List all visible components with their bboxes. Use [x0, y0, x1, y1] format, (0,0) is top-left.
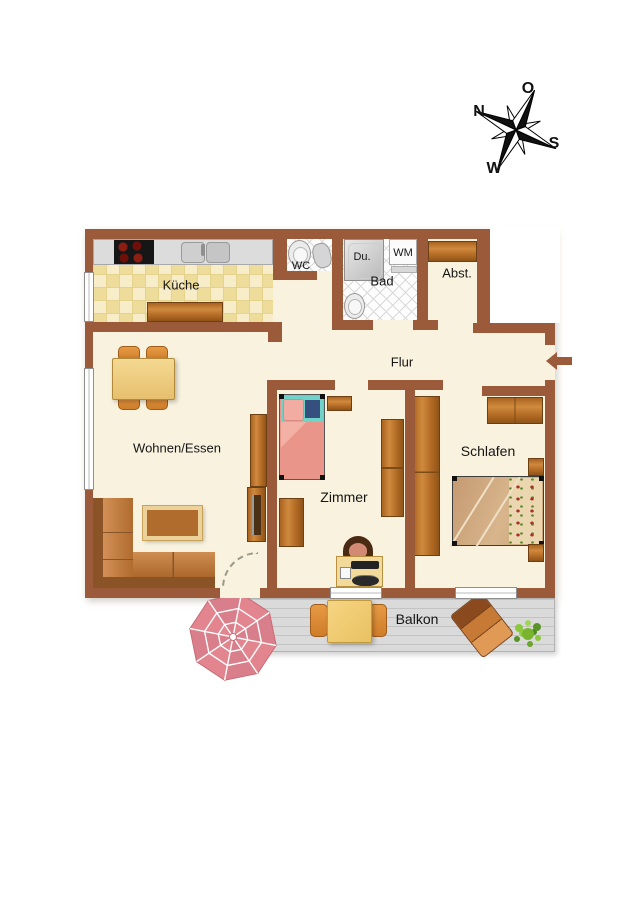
wall-segment	[332, 229, 343, 330]
faucet-icon	[201, 244, 205, 256]
bed-pillow	[283, 399, 304, 421]
wardrobe	[381, 419, 404, 517]
single-bed	[279, 394, 325, 480]
room-label-abst: Abst.	[442, 266, 472, 281]
wall-segment	[477, 229, 490, 333]
wall-segment	[428, 320, 438, 330]
sofa-seats	[103, 498, 133, 588]
wardrobe	[412, 396, 440, 556]
wall-segment	[267, 380, 335, 390]
window	[330, 587, 382, 599]
nightstand	[327, 396, 352, 411]
wall-segment	[85, 229, 490, 239]
room-label-wohnen: Wohnen/Essen	[133, 441, 221, 456]
fixture-label-dusche: Du.	[353, 251, 370, 263]
storage-shelf	[428, 241, 477, 262]
wall-segment	[273, 271, 317, 280]
compass-label-north: N	[473, 103, 485, 120]
fixture-label-wm: WM	[393, 247, 413, 259]
shelf	[279, 498, 304, 547]
compass-label-south: S	[549, 135, 560, 152]
bed-post	[320, 394, 325, 399]
wall-segment	[482, 386, 545, 396]
wall-segment	[267, 380, 277, 588]
bed-post	[279, 475, 284, 480]
wall-segment	[268, 322, 282, 342]
wall-segment	[85, 322, 282, 332]
bed-post	[452, 541, 457, 546]
bed-post	[279, 394, 284, 399]
floor-plan: Küche WC Du. Bad WM Abst. Flur Wohnen/Es…	[0, 0, 635, 900]
kitchen-table	[147, 302, 223, 322]
shelf	[487, 397, 543, 424]
room-label-schlafen: Schlafen	[461, 443, 515, 459]
compass-label-west: W	[486, 160, 502, 177]
cabinet	[250, 414, 267, 487]
desk	[336, 556, 383, 587]
balcony-chair	[310, 604, 328, 637]
room-label-flur: Flur	[391, 355, 413, 370]
washing-machine-lid	[391, 266, 417, 273]
sofa-back	[103, 577, 215, 588]
plant-icon	[522, 628, 534, 640]
window	[84, 272, 94, 322]
bed-post	[320, 475, 325, 480]
room-label-balkon: Balkon	[396, 611, 439, 627]
entrance-arrow-icon	[546, 352, 557, 370]
bed-folded-blanket	[305, 400, 320, 418]
window	[84, 368, 94, 490]
coffee-table	[143, 506, 202, 540]
sofa-seats	[133, 552, 215, 577]
parasol-icon	[187, 591, 279, 683]
bed-post	[539, 476, 544, 481]
wall-segment	[545, 380, 555, 598]
room-label-kueche: Küche	[163, 278, 200, 293]
keyboard-icon	[351, 561, 379, 569]
bed-seam	[449, 477, 494, 548]
compass-label-east: O	[522, 80, 534, 97]
wall-segment	[545, 323, 555, 345]
compass-rose: O N S W	[452, 66, 582, 184]
cabinet-slot	[252, 495, 261, 535]
cabinet	[247, 487, 266, 542]
bed-post	[452, 476, 457, 481]
sofa-back	[93, 498, 103, 588]
window	[455, 587, 517, 599]
dining-table	[112, 358, 175, 400]
nightstand	[528, 458, 544, 476]
wall-segment	[415, 380, 443, 390]
wall-segment	[405, 380, 415, 588]
entrance-arrow-icon	[556, 357, 572, 365]
monitor-icon	[352, 575, 379, 586]
nightstand	[528, 544, 544, 562]
stove-icon	[114, 240, 154, 264]
toilet-icon	[344, 293, 365, 319]
bed-blanket-fold	[281, 422, 323, 452]
balcony-door-opening	[220, 588, 260, 598]
outside-cutout	[490, 226, 560, 323]
wall-segment	[417, 229, 428, 330]
double-bed	[452, 476, 544, 546]
paper-icon	[340, 567, 351, 579]
sink-icon	[206, 242, 230, 263]
room-label-bad: Bad	[370, 274, 393, 289]
room-label-wc: WC	[292, 260, 310, 272]
room-label-zimmer: Zimmer	[320, 489, 367, 505]
wall-segment	[343, 320, 373, 330]
balcony-table	[327, 600, 372, 643]
